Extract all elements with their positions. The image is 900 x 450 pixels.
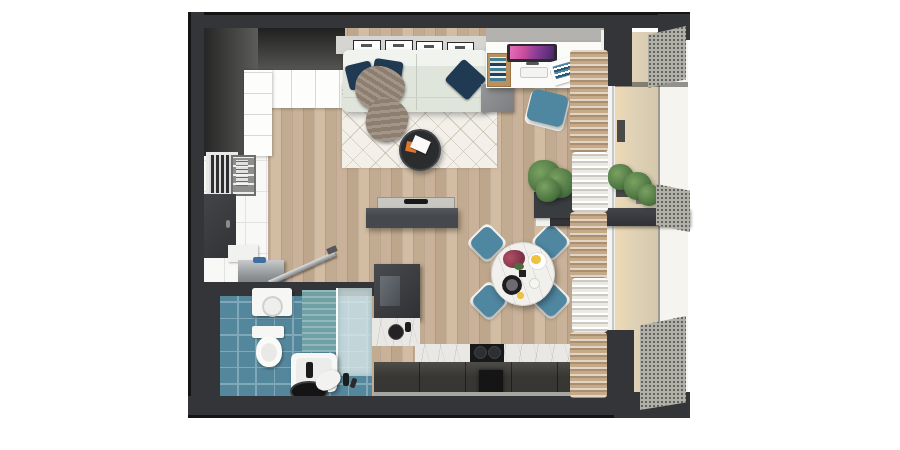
tall-cabinet-glass <box>380 276 400 306</box>
balcony-wall-lamp <box>617 120 625 142</box>
outer-wall-left <box>188 12 204 418</box>
sofa-seam <box>416 54 417 110</box>
potted-plant-leaves <box>536 178 560 202</box>
wall-frame-art <box>424 45 434 48</box>
lemon <box>517 292 524 299</box>
side-cabinet <box>481 84 514 112</box>
kettle <box>388 324 404 340</box>
railing-panel <box>640 316 686 410</box>
railing-panel <box>656 184 690 232</box>
cooktop-burner <box>488 346 501 359</box>
flower-leaves <box>514 263 524 270</box>
balcony-divider-wall-top <box>604 22 632 86</box>
toiletry-bottle <box>343 373 349 386</box>
cooktop-burner <box>474 346 487 359</box>
curtain-segment <box>572 152 608 212</box>
black-plate-inner <box>506 279 518 291</box>
counter-vase <box>405 322 411 332</box>
bath-faucet <box>306 362 313 378</box>
keyboard <box>520 67 548 78</box>
shoes <box>253 257 266 263</box>
shower-glass <box>336 288 372 376</box>
table-cup <box>529 278 540 289</box>
fruit <box>531 255 541 264</box>
tv-sideboard <box>366 208 458 228</box>
outer-wall-bottom <box>188 396 616 418</box>
floor-plan-render <box>0 0 900 450</box>
curtain-segment <box>570 212 607 278</box>
wall-frame-art <box>455 46 465 49</box>
wall-frame-art <box>393 44 404 47</box>
curtain-segment <box>572 278 608 332</box>
entry-door-handle <box>226 220 230 228</box>
shower-tile-wall <box>302 290 336 352</box>
railing-panel <box>648 26 686 88</box>
washer-drum <box>262 296 283 317</box>
curtain-segment <box>570 332 607 398</box>
display-cabinet-dishes <box>236 160 248 186</box>
organizer-books <box>490 57 506 81</box>
table-napkin <box>519 270 526 277</box>
corner-wardrobe-vertical <box>244 70 272 156</box>
wall-frame-art <box>361 44 372 47</box>
tv-handle <box>404 199 428 204</box>
monitor-stand <box>526 62 539 65</box>
curtain-segment <box>570 50 608 152</box>
monitor-screen <box>510 46 554 59</box>
toilet-seat <box>261 343 277 362</box>
